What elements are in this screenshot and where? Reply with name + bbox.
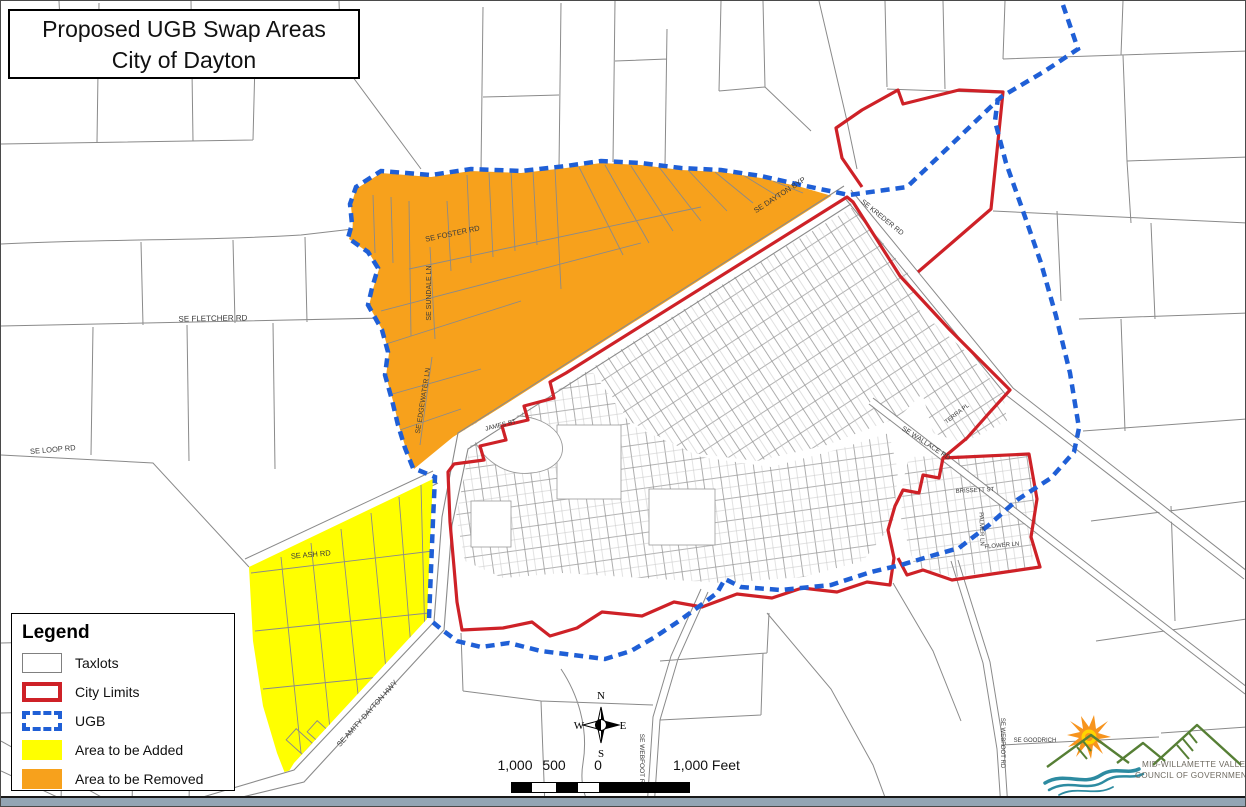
- compass-north-label: N: [597, 690, 605, 702]
- compass-rose: N W E S: [571, 685, 631, 768]
- scale-bar-graphic: [511, 782, 690, 793]
- legend: Legend Taxlots City Limits UGB Area to b…: [11, 613, 235, 791]
- org-name-line2: COUNCIL OF GOVERNMENTS: [1135, 771, 1246, 780]
- street-label: SE SUNDALE LN: [426, 265, 433, 320]
- map-title-line1: Proposed UGB Swap Areas: [10, 14, 358, 45]
- org-logo: MID-WILLAMETTE VALLEY COUNCIL OF GOVERNM…: [1039, 703, 1246, 804]
- scale-bar: 1,000 500 0 1,000 Feet: [489, 757, 789, 801]
- legend-label: UGB: [75, 713, 105, 729]
- area-added-swatch: [22, 740, 62, 760]
- street-label: SE WEBFOOT RD: [999, 718, 1005, 769]
- map-frame: SE FLETCHER RD SE FOSTER RD SE SUNDALE L…: [0, 0, 1246, 807]
- city-limits-swatch: [22, 682, 62, 702]
- legend-title: Legend: [22, 622, 224, 644]
- legend-label: City Limits: [75, 684, 140, 700]
- compass-star-icon: [583, 707, 619, 743]
- scale-label-1000-feet: 1,000 Feet: [673, 757, 740, 773]
- org-name-line1: MID-WILLAMETTE VALLEY: [1142, 760, 1246, 769]
- map-title-box: Proposed UGB Swap Areas City of Dayton: [8, 9, 360, 79]
- scale-label-500: 500: [532, 757, 576, 773]
- scale-label-0: 0: [576, 757, 620, 773]
- street-label: SE LOOP RD: [30, 443, 77, 456]
- compass-west-label: W: [574, 720, 585, 732]
- legend-item-city-limits: City Limits: [22, 681, 224, 703]
- legend-label: Area to be Removed: [75, 771, 203, 787]
- scale-label-1000-left: 1,000: [493, 757, 537, 773]
- legend-item-taxlots: Taxlots: [22, 652, 224, 674]
- legend-label: Area to be Added: [75, 742, 183, 758]
- street-label: SE FLETCHER RD: [178, 313, 247, 323]
- legend-label: Taxlots: [75, 655, 119, 671]
- street-label: PALMER LN: [977, 512, 984, 546]
- legend-item-ugb: UGB: [22, 710, 224, 732]
- taxlots-swatch: [22, 653, 62, 673]
- area-removed-swatch: [22, 769, 62, 789]
- legend-item-area-removed: Area to be Removed: [22, 768, 224, 790]
- legend-item-area-added: Area to be Added: [22, 739, 224, 761]
- ugb-swatch: [22, 711, 62, 731]
- map-title-line2: City of Dayton: [10, 45, 358, 76]
- river-icon: [1045, 769, 1143, 795]
- window-bottom-edge: [1, 796, 1245, 806]
- compass-east-label: E: [620, 720, 627, 732]
